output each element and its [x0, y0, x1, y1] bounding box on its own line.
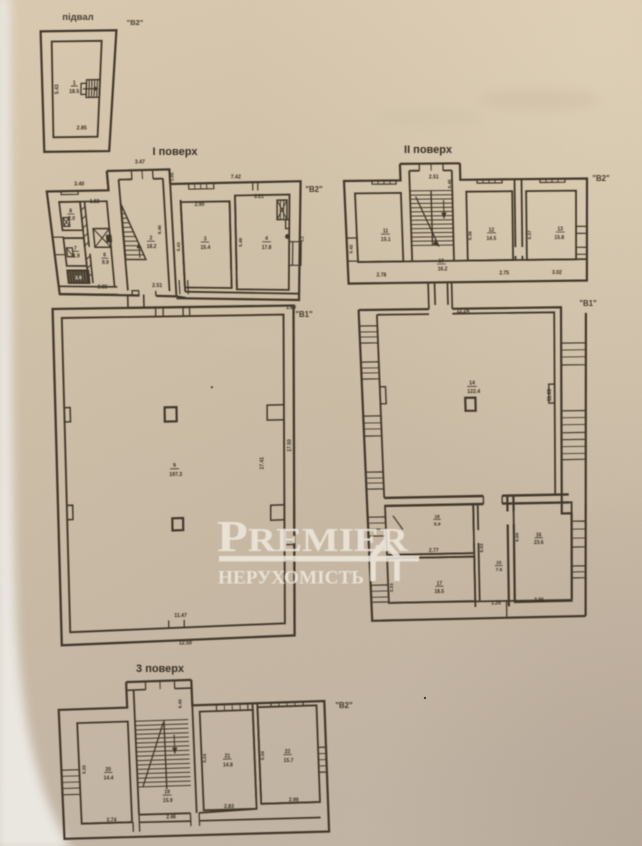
svg-text:197.3: 197.3 [169, 472, 182, 478]
svg-text:5.36: 5.36 [468, 231, 473, 240]
svg-text:"В2": "В2" [127, 18, 144, 27]
svg-text:6.45: 6.45 [177, 699, 182, 708]
svg-text:6.46: 6.46 [157, 225, 162, 234]
svg-text:16.2: 16.2 [438, 266, 448, 272]
svg-text:5.9: 5.9 [434, 521, 441, 527]
svg-text:"В2": "В2" [592, 174, 610, 183]
svg-text:1.5: 1.5 [75, 275, 82, 280]
svg-text:"В2": "В2" [305, 185, 323, 194]
svg-text:17.50: 17.50 [287, 439, 293, 452]
svg-text:9: 9 [173, 463, 176, 469]
svg-text:5.43: 5.43 [176, 242, 181, 251]
svg-text:6.06: 6.06 [515, 532, 520, 541]
svg-text:1.05: 1.05 [170, 172, 175, 181]
svg-text:15.7: 15.7 [284, 758, 294, 764]
svg-text:9.9: 9.9 [102, 260, 109, 266]
svg-text:3.40: 3.40 [74, 181, 84, 187]
svg-text:ІІ поверх: ІІ поверх [404, 144, 453, 156]
svg-text:11: 11 [383, 229, 389, 235]
svg-text:2.90: 2.90 [195, 202, 205, 208]
svg-text:3.96: 3.96 [534, 598, 544, 604]
svg-text:"В2": "В2" [335, 701, 353, 710]
svg-text:5.42: 5.42 [349, 244, 354, 253]
svg-text:5.34: 5.34 [260, 751, 265, 760]
svg-text:І поверх: І поверх [153, 146, 199, 158]
svg-text:підвал: підвал [62, 12, 93, 23]
svg-text:3.33: 3.33 [389, 583, 394, 592]
svg-text:14.8: 14.8 [223, 763, 233, 769]
svg-text:4: 4 [265, 236, 268, 242]
svg-text:5.37: 5.37 [527, 230, 532, 239]
svg-text:2.78: 2.78 [377, 273, 387, 279]
svg-text:6.03: 6.03 [479, 543, 484, 552]
svg-text:15.1: 15.1 [381, 237, 391, 243]
svg-text:2.0: 2.0 [68, 216, 75, 222]
svg-text:2.85: 2.85 [77, 125, 87, 131]
svg-text:17.8: 17.8 [262, 245, 272, 251]
svg-text:5.25: 5.25 [81, 765, 86, 774]
svg-text:15.9: 15.9 [163, 798, 173, 804]
svg-text:12.50: 12.50 [179, 641, 192, 647]
svg-text:7.6: 7.6 [496, 567, 503, 573]
svg-text:18.2: 18.2 [147, 244, 157, 250]
svg-text:14.5: 14.5 [487, 236, 497, 242]
svg-text:3.02: 3.02 [552, 270, 562, 276]
svg-text:15.4: 15.4 [201, 245, 211, 251]
svg-text:6.45: 6.45 [447, 179, 452, 188]
svg-text:"В1": "В1" [579, 299, 597, 308]
svg-text:2.51: 2.51 [152, 283, 162, 289]
svg-text:2.85: 2.85 [97, 285, 107, 291]
svg-text:14.4: 14.4 [104, 776, 114, 782]
svg-text:23.6: 23.6 [534, 540, 544, 546]
svg-text:5.24: 5.24 [202, 753, 207, 762]
svg-text:122.4: 122.4 [467, 389, 480, 395]
svg-text:"В1": "В1" [295, 310, 313, 319]
svg-text:7.42: 7.42 [231, 175, 241, 181]
svg-text:3 поверх: 3 поверх [136, 663, 185, 675]
svg-text:17.41: 17.41 [259, 457, 265, 470]
svg-text:18.5: 18.5 [69, 89, 79, 95]
svg-text:НЕРУХОМІСТЬ: НЕРУХОМІСТЬ [218, 568, 364, 589]
svg-text:11.03: 11.03 [547, 389, 553, 401]
svg-text:2.51: 2.51 [429, 175, 439, 181]
svg-text:14: 14 [469, 380, 475, 386]
svg-text:3.21: 3.21 [254, 194, 264, 200]
svg-text:15.8: 15.8 [554, 235, 564, 241]
svg-text:5.43: 5.43 [54, 84, 60, 94]
svg-text:11.47: 11.47 [174, 613, 187, 619]
svg-text:3.47: 3.47 [135, 160, 145, 166]
svg-text:6.2: 6.2 [301, 236, 305, 241]
svg-text:1.82: 1.82 [90, 199, 100, 205]
svg-text:1.9: 1.9 [73, 254, 80, 260]
svg-text:18.5: 18.5 [434, 589, 444, 595]
svg-text:5.49: 5.49 [238, 237, 243, 246]
svg-text:1.26: 1.26 [491, 601, 501, 607]
svg-text:2.75: 2.75 [499, 271, 509, 277]
svg-text:2.83: 2.83 [224, 804, 234, 810]
svg-text:2.46: 2.46 [166, 815, 176, 821]
